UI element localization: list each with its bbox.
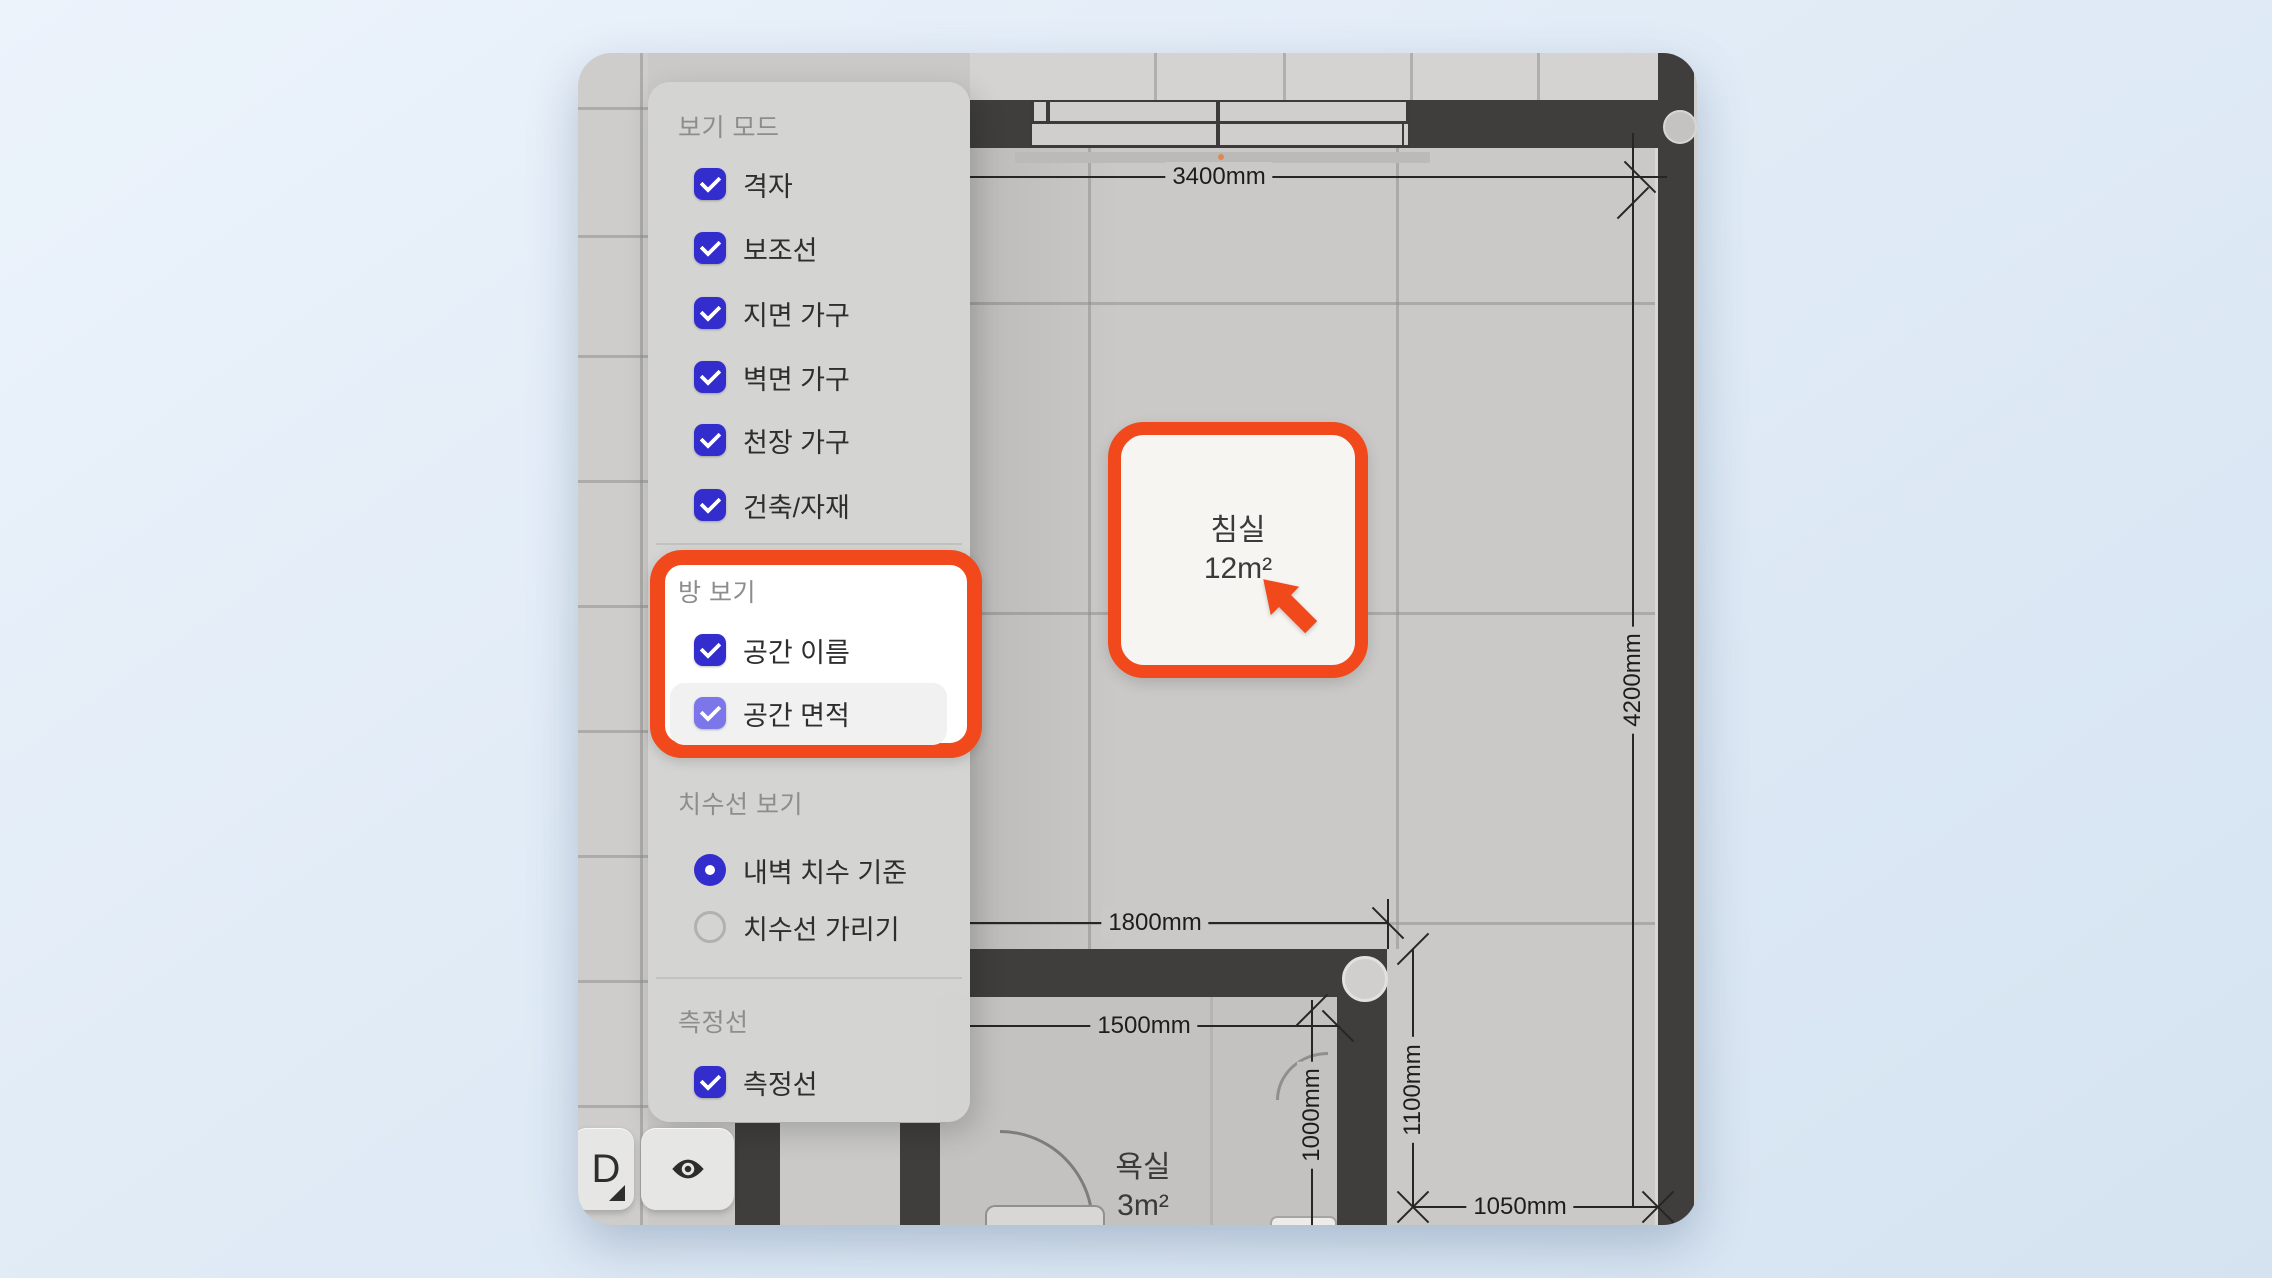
option-guidelines[interactable]: 보조선: [694, 232, 818, 264]
checkbox-checked-icon[interactable]: [694, 489, 726, 521]
check-icon: [700, 637, 722, 659]
checkbox-checked-icon[interactable]: [694, 424, 726, 456]
floorplan-app-window: 3400mm 4200mm 1800mm 1500mm 1000mm 1100m…: [578, 53, 1697, 1225]
option-space-area[interactable]: 공간 면적: [694, 697, 850, 729]
option-label: 공간 이름: [743, 631, 850, 670]
tile-seam: [578, 107, 648, 110]
tile-seam: [1410, 53, 1413, 100]
wall-lower-left-b: [900, 1123, 940, 1225]
option-label: 치수선 가리기: [743, 908, 900, 947]
room-label-bedroom-highlight[interactable]: 침실 12m²: [1108, 422, 1368, 678]
section-title-room-view: 방 보기: [678, 573, 756, 609]
checkbox-checked-icon[interactable]: [694, 168, 726, 200]
check-icon: [700, 492, 722, 514]
radio-hide-dimension-lines[interactable]: 치수선 가리기: [694, 911, 900, 943]
room-name: 욕실: [1115, 1149, 1170, 1187]
option-label: 격자: [743, 165, 793, 204]
dim-label-bath-inner: 1500mm: [1090, 1011, 1197, 1041]
dim-label-bottom-right: 1050mm: [1466, 1192, 1573, 1222]
window-pane: [1050, 102, 1216, 121]
tile-seam: [1283, 53, 1286, 100]
outside-tiles-top: [970, 53, 1697, 100]
option-label: 지면 가구: [743, 294, 850, 333]
dim-label-bath-outer: 1800mm: [1101, 908, 1208, 938]
option-label: 공간 면적: [743, 694, 850, 733]
check-icon: [700, 427, 722, 449]
tile-seam: [578, 730, 648, 733]
room-area: 3m²: [1117, 1187, 1169, 1225]
check-icon: [700, 1069, 722, 1091]
option-floor-furniture[interactable]: 지면 가구: [694, 297, 850, 329]
floor-seam: [1396, 148, 1399, 949]
window[interactable]: [1030, 100, 1410, 148]
checkbox-checked-icon[interactable]: [694, 1066, 726, 1098]
tile-seam: [1154, 53, 1157, 100]
section-title-dimension-view: 치수선 보기: [678, 785, 803, 821]
wall-joint-circle: [1663, 110, 1697, 144]
option-ceiling-furniture[interactable]: 천장 가구: [694, 424, 850, 456]
radio-unselected-icon[interactable]: [694, 911, 726, 943]
option-wall-furniture[interactable]: 벽면 가구: [694, 361, 850, 393]
bathtub-edge: [1270, 1216, 1337, 1225]
tile-seam: [578, 855, 648, 858]
room-label-bathroom[interactable]: 욕실 3m²: [1063, 1149, 1223, 1225]
section-title-measure-line: 측정선: [678, 1003, 749, 1039]
checkbox-checked-icon[interactable]: [694, 232, 726, 264]
option-label: 천장 가구: [743, 421, 850, 460]
tile-seam: [1537, 53, 1540, 100]
section-title-view-mode: 보기 모드: [678, 108, 779, 144]
radio-selected-icon[interactable]: [694, 854, 726, 886]
view-options-panel: 보기 모드 격자 보조선 지면 가구 벽면 가구 천장 가구 건축/자재 방: [648, 82, 970, 1122]
checkbox-checked-icon[interactable]: [694, 697, 726, 729]
option-label: 보조선: [743, 229, 818, 268]
divider: [656, 977, 962, 979]
window-pane: [1220, 102, 1406, 121]
checkbox-checked-icon[interactable]: [694, 634, 726, 666]
option-label: 벽면 가구: [743, 358, 850, 397]
wall-bathroom-top: [970, 949, 1387, 997]
option-label: 건축/자재: [743, 486, 850, 525]
option-measure-line[interactable]: 측정선: [694, 1066, 818, 1098]
outside-tiles-left: [578, 53, 648, 1225]
option-architecture-materials[interactable]: 건축/자재: [694, 489, 850, 521]
radio-inner-wall-dimension[interactable]: 내벽 치수 기준: [694, 854, 907, 886]
option-space-name[interactable]: 공간 이름: [694, 634, 850, 666]
option-grid[interactable]: 격자: [694, 168, 793, 200]
dim-label-top: 3400mm: [1165, 162, 1272, 192]
tile-seam: [578, 480, 648, 483]
check-icon: [700, 700, 722, 722]
wall-right-outer-edge: [1694, 53, 1697, 1225]
window-pane: [1032, 124, 1216, 145]
window-cap: [1404, 124, 1408, 145]
cursor-pointer-icon: [1254, 569, 1328, 645]
wall-right: [1658, 53, 1694, 1225]
divider: [656, 543, 962, 545]
wall-right-inner-edge: [1655, 148, 1658, 1225]
check-icon: [700, 300, 722, 322]
visibility-options-button[interactable]: [641, 1128, 734, 1210]
tile-seam: [578, 1105, 648, 1108]
eye-icon: [668, 1149, 708, 1189]
dim-line-top: [970, 176, 1667, 178]
checkbox-checked-icon[interactable]: [694, 361, 726, 393]
dim-label-bath-depth: 1000mm: [1297, 1061, 1327, 1168]
tile-seam: [578, 980, 648, 983]
check-icon: [700, 171, 722, 193]
dim-label-entry: 1100mm: [1398, 1037, 1428, 1143]
check-icon: [700, 364, 722, 386]
corner-triangle-icon: [609, 1185, 625, 1201]
room-name: 침실: [1210, 512, 1265, 550]
sill-marker-dot: [1218, 154, 1224, 160]
tile-seam: [578, 605, 648, 608]
tile-seam: [578, 235, 648, 238]
check-icon: [700, 235, 722, 257]
wall-lower-left-a: [735, 1123, 780, 1225]
tile-seam: [640, 53, 643, 1225]
window-cap: [1034, 102, 1046, 121]
dim-label-right: 4200mm: [1618, 626, 1648, 733]
view-dimension-toggle-button[interactable]: D: [578, 1128, 634, 1210]
checkbox-checked-icon[interactable]: [694, 297, 726, 329]
option-label: 측정선: [743, 1063, 818, 1102]
tile-seam: [578, 355, 648, 358]
window-pane: [1220, 124, 1402, 145]
wall-joint-circle: [1342, 956, 1388, 1002]
option-label: 내벽 치수 기준: [743, 851, 907, 890]
